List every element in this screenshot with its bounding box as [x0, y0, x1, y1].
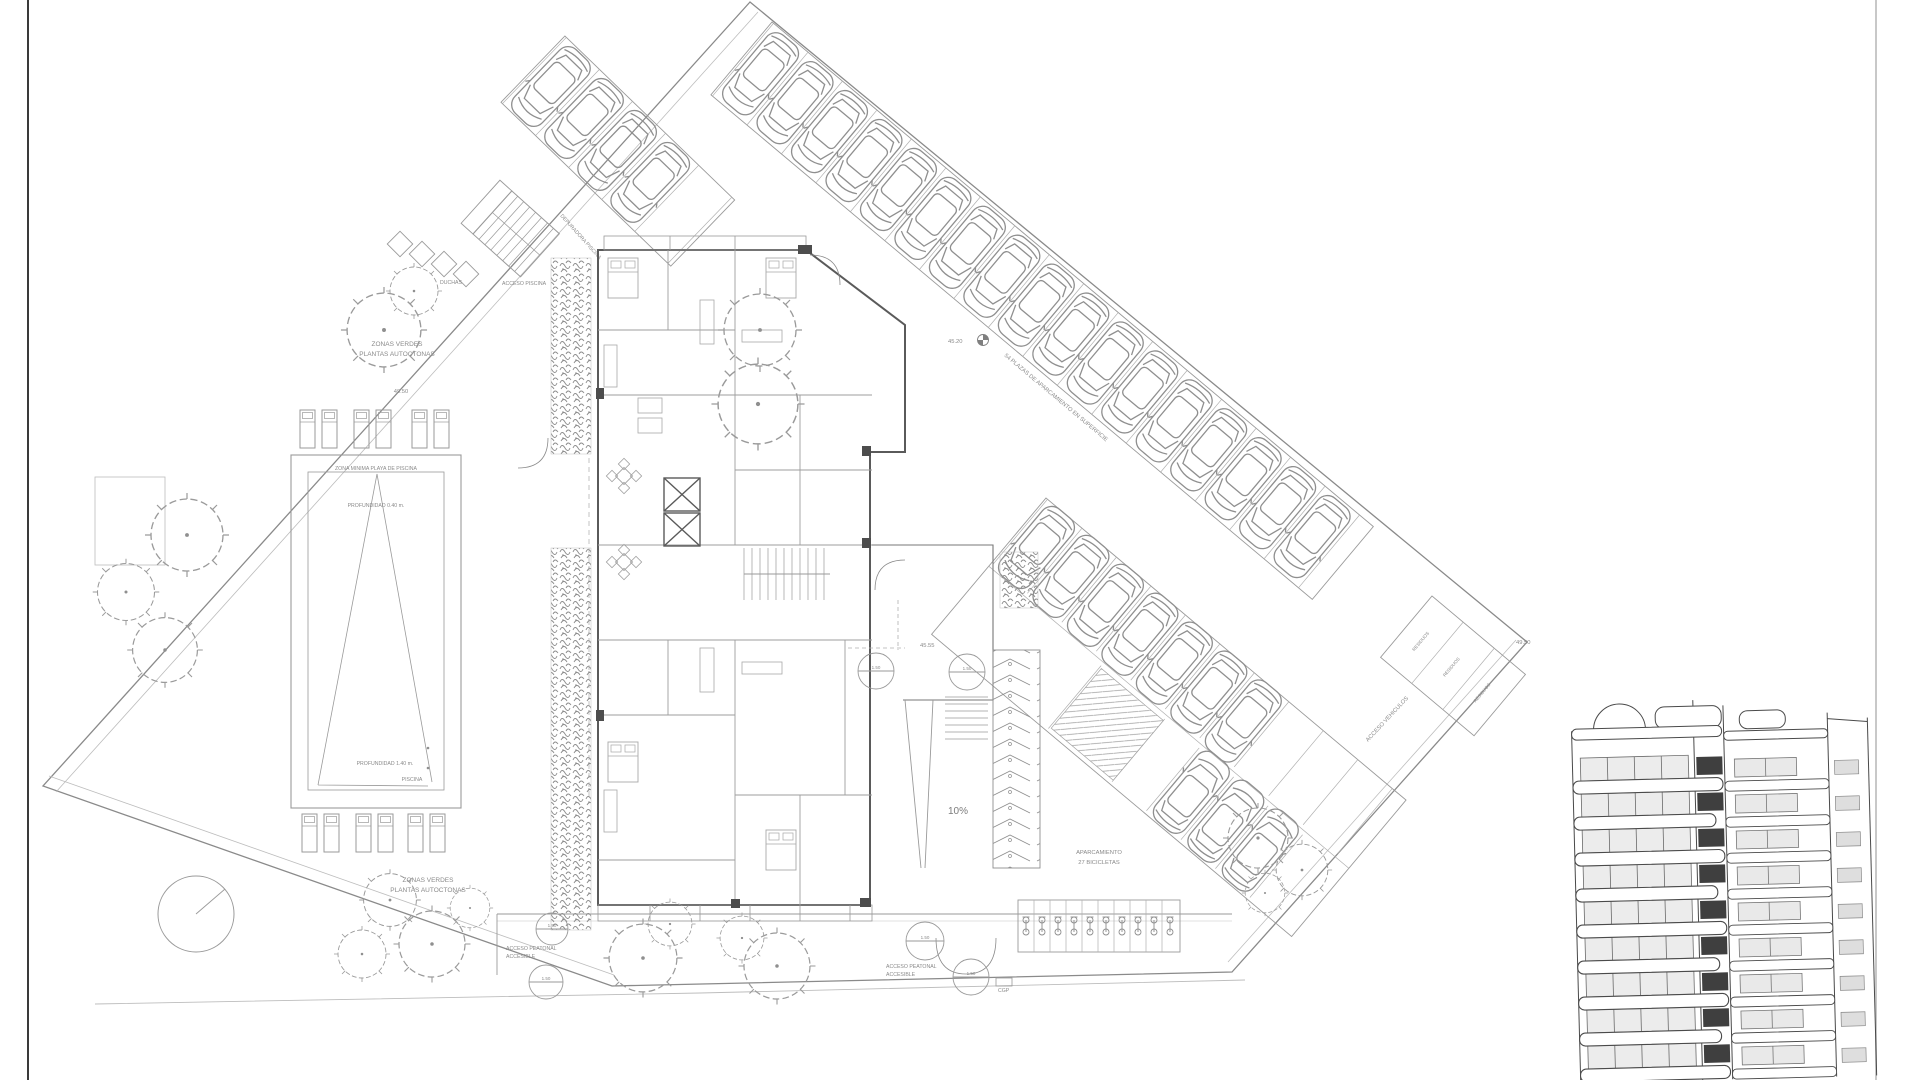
label-level-terrace: 45.55 — [920, 643, 935, 649]
ramp-zone — [905, 552, 1040, 868]
label-circle-4: 1.50 — [967, 971, 976, 976]
label-pool-access: ACCESO PISCINA — [502, 281, 547, 287]
loungers-bottom — [302, 814, 445, 852]
waste-label-1: RESIDUOS — [1411, 631, 1430, 652]
benchmark-icon — [978, 335, 989, 346]
label-level-mid: 45.20 — [948, 339, 963, 345]
access-labels: ACCESO PEATONAL ACCESIBLE ACCESO PEATONA… — [506, 946, 1012, 994]
sidewalk-strip — [95, 914, 1245, 1004]
waste-stalls: RESIDUOS RESIDUOS RESIDUOS — [1381, 596, 1526, 736]
label-circle-2: 1.50 — [542, 976, 551, 981]
circle-feature — [158, 876, 234, 952]
label-parking-count: 54 PLAZAS DE APARCAMIENTO EN SUPERFICIE — [1003, 353, 1109, 443]
label-level-east: 49.50 — [1516, 640, 1531, 646]
label-level-top: 49.50 — [394, 389, 409, 395]
label-ramp-slope: 10% — [948, 806, 968, 817]
trees-east — [711, 288, 804, 451]
label-ped-access-2b: ACCESIBLE — [886, 972, 916, 978]
tower-render — [1571, 696, 1877, 1080]
green-zone-top: ZONAS VERDES PLANTAS AUTOCTONAS 49.50 — [341, 263, 442, 395]
label-pool-zone: ZONA MINIMA PLAYA DE PISCINA — [335, 466, 418, 472]
hedge-strips — [551, 258, 591, 930]
label-circle-6: 1.50 — [963, 666, 972, 671]
label-green-top-1: ZONAS VERDES — [372, 341, 424, 348]
label-pool-depth-shallow: PROFUNDIDAD 0.40 m. — [348, 503, 405, 509]
entrance-stair — [461, 180, 559, 277]
label-cgp: CGP — [998, 988, 1010, 994]
label-showers: DUCHAS — [440, 280, 462, 286]
label-ped-access-2a: ACCESO PEATONAL — [886, 964, 937, 970]
furniture — [604, 258, 796, 870]
showers — [387, 231, 478, 286]
green-zone-bottom: ZONAS VERDES PLANTAS AUTOCTONAS — [334, 869, 493, 982]
bike-parking: APARCAMIENTO 27 BICICLETAS — [1018, 850, 1180, 952]
label-vehicle-access: ACCESO VEHICULOS — [1365, 696, 1410, 744]
drawing-sheet: RESIDUOS RESIDUOS RESIDUOS 49.50 54 PLAZ… — [0, 0, 1920, 1080]
label-ped-access-1a: ACCESO PEATONAL — [506, 946, 557, 952]
parking-band-ne — [711, 22, 1373, 599]
label-pool-name: PISCINA — [402, 777, 423, 783]
label-circle-1: 1.50 — [548, 923, 557, 928]
label-green-top-2: PLANTAS AUTOCTONAS — [359, 351, 435, 358]
loungers-top — [300, 410, 449, 448]
waste-label-2: RESIDUOS — [1442, 656, 1461, 677]
label-circle-5: 1.50 — [872, 665, 881, 670]
label-bike-parking-2: 27 BICICLETAS — [1078, 860, 1120, 866]
parking-group-nw — [501, 36, 735, 266]
label-circle-3: 1.50 — [921, 935, 930, 940]
label-bike-parking-1: APARCAMIENTO — [1076, 850, 1122, 856]
label-pool-plant: DEPURADORA PISCINA — [559, 213, 603, 261]
site-plan-svg: RESIDUOS RESIDUOS RESIDUOS 49.50 54 PLAZ… — [0, 0, 1920, 1080]
label-ped-access-1b: ACCESIBLE — [506, 954, 536, 960]
label-pool-depth-deep: PROFUNDIDAD 1.40 m. — [357, 761, 414, 767]
